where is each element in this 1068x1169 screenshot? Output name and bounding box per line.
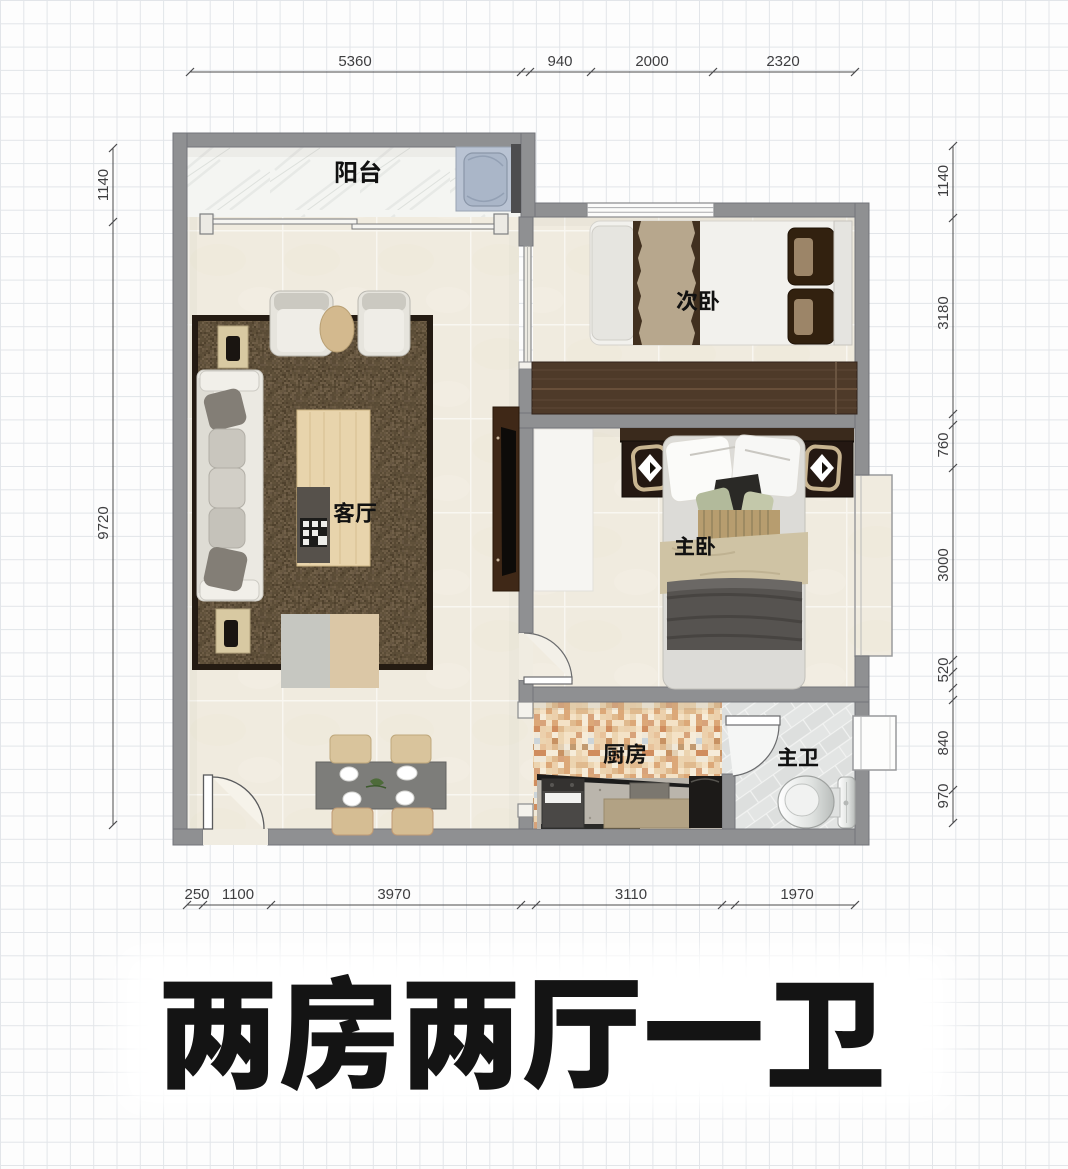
svg-text:1100: 1100 <box>222 886 254 903</box>
svg-text:5360: 5360 <box>338 53 371 70</box>
svg-text:970: 970 <box>935 783 952 808</box>
svg-text:940: 940 <box>547 53 572 70</box>
svg-text:1970: 1970 <box>780 886 813 903</box>
svg-text:3000: 3000 <box>935 548 952 581</box>
svg-text:760: 760 <box>935 432 952 457</box>
svg-text:520: 520 <box>935 657 952 682</box>
svg-text:1140: 1140 <box>935 165 952 197</box>
svg-text:840: 840 <box>935 730 952 755</box>
svg-text:1140: 1140 <box>95 169 112 201</box>
svg-text:3970: 3970 <box>377 886 410 903</box>
svg-text:3110: 3110 <box>615 886 647 903</box>
svg-text:3180: 3180 <box>935 296 952 329</box>
svg-text:9720: 9720 <box>95 506 112 539</box>
svg-text:2320: 2320 <box>766 53 799 70</box>
svg-text:2000: 2000 <box>635 53 668 70</box>
svg-text:250: 250 <box>184 886 209 903</box>
